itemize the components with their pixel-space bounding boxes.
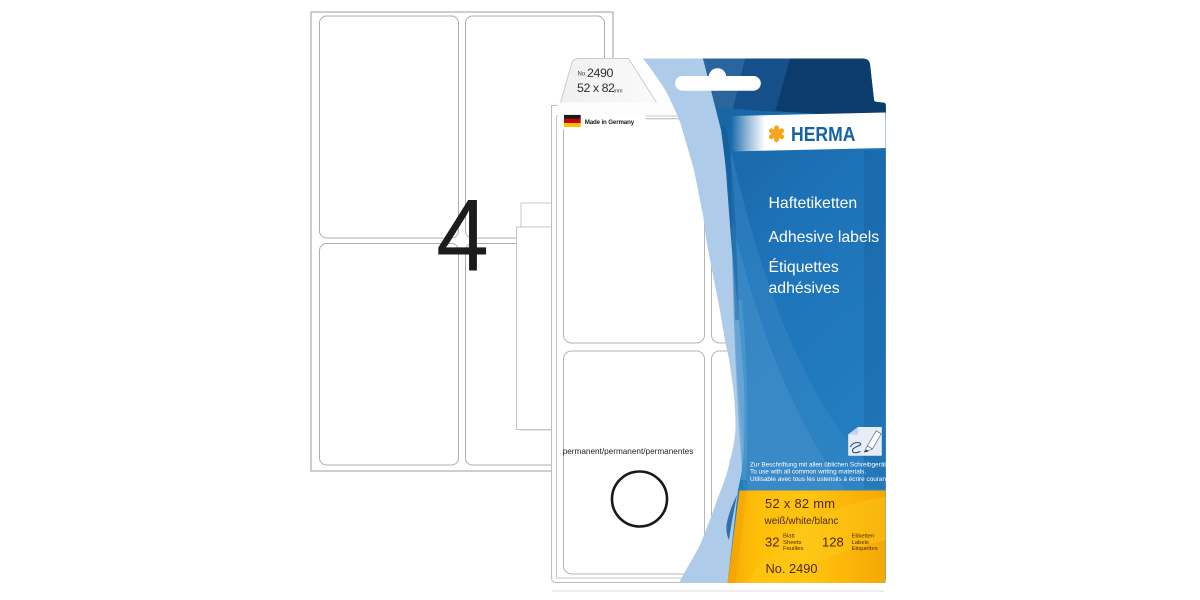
svg-text:weiß/white/blanc: weiß/white/blanc <box>764 516 839 527</box>
svg-text:To use with all common writing: To use with all common writing materials… <box>750 469 866 476</box>
svg-text:Haftetiketten: Haftetiketten <box>769 195 858 212</box>
svg-text:Adhesive labels: Adhesive labels <box>769 229 880 246</box>
svg-text:mm: mm <box>614 88 623 94</box>
svg-text:52 x 82 mm: 52 x 82 mm <box>765 496 835 511</box>
svg-text:No. 2490: No. 2490 <box>766 561 818 576</box>
svg-text:No.: No. <box>578 72 588 78</box>
svg-text:HERMA: HERMA <box>791 123 856 145</box>
svg-text:52 x 82: 52 x 82 <box>577 81 615 95</box>
svg-text:Utilisable avec tous les usten: Utilisable avec tous les ustensils à écr… <box>750 476 893 483</box>
svg-text:permanent/permanent/permanente: permanent/permanent/permanentes <box>563 447 694 456</box>
svg-text:Étiquettes: Étiquettes <box>769 257 839 276</box>
svg-text:Etiketten: Etiketten <box>852 534 875 540</box>
svg-text:Sheets: Sheets <box>783 540 801 546</box>
svg-text:32: 32 <box>765 535 779 550</box>
svg-text:128: 128 <box>822 535 844 550</box>
svg-text:Made in Germany: Made in Germany <box>585 119 635 126</box>
svg-text:4: 4 <box>436 178 489 292</box>
svg-text:Zur Beschriftung mit allen übl: Zur Beschriftung mit allen üblichen Schr… <box>750 461 895 468</box>
svg-text:2490: 2490 <box>587 66 613 80</box>
svg-text:Blatt: Blatt <box>783 534 795 540</box>
svg-text:Feuilles: Feuilles <box>783 546 803 552</box>
svg-text:adhésives: adhésives <box>769 280 840 297</box>
svg-text:Etiquettes: Etiquettes <box>852 546 878 552</box>
svg-text:Labels: Labels <box>852 540 869 546</box>
